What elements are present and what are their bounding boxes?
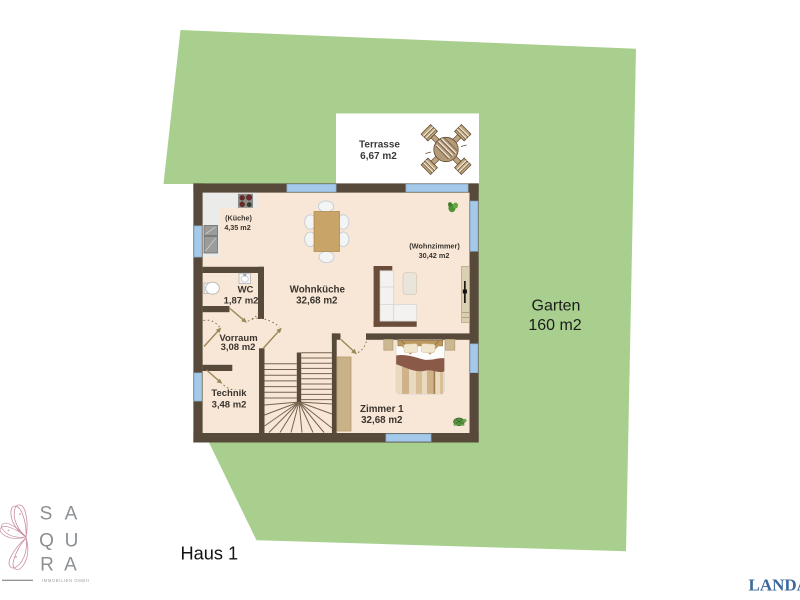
svg-text:LANDA: LANDA (749, 576, 800, 595)
svg-text:32,68 m2: 32,68 m2 (361, 415, 403, 426)
svg-text:A: A (65, 504, 78, 525)
svg-text:R: R (40, 555, 54, 576)
svg-text:(Küche): (Küche) (225, 214, 252, 223)
svg-text:160 m2: 160 m2 (528, 317, 581, 334)
svg-text:WC: WC (238, 284, 254, 295)
svg-text:Technik: Technik (211, 388, 247, 399)
svg-text:(Wohnzimmer): (Wohnzimmer) (409, 241, 460, 250)
svg-text:Garten: Garten (532, 298, 581, 315)
svg-text:Terrasse: Terrasse (359, 139, 400, 150)
svg-text:3,08 m2: 3,08 m2 (221, 342, 256, 353)
svg-text:IMMOBILIEN GMBH: IMMOBILIEN GMBH (42, 578, 89, 583)
svg-text:Wohnküche: Wohnküche (290, 285, 346, 296)
svg-text:32,68 m2: 32,68 m2 (296, 296, 338, 307)
svg-text:Haus 1: Haus 1 (181, 544, 239, 564)
svg-text:4,35 m2: 4,35 m2 (224, 223, 250, 232)
svg-text:6,67 m2: 6,67 m2 (360, 151, 397, 162)
svg-text:Zimmer 1: Zimmer 1 (360, 404, 404, 415)
svg-text:Q: Q (39, 531, 54, 552)
svg-text:3,48 m2: 3,48 m2 (212, 400, 247, 411)
svg-text:A: A (64, 555, 77, 576)
svg-text:1,87 m2: 1,87 m2 (224, 295, 259, 306)
svg-text:30,42 m2: 30,42 m2 (419, 251, 450, 260)
svg-text:S: S (40, 504, 53, 525)
svg-text:U: U (65, 531, 79, 552)
